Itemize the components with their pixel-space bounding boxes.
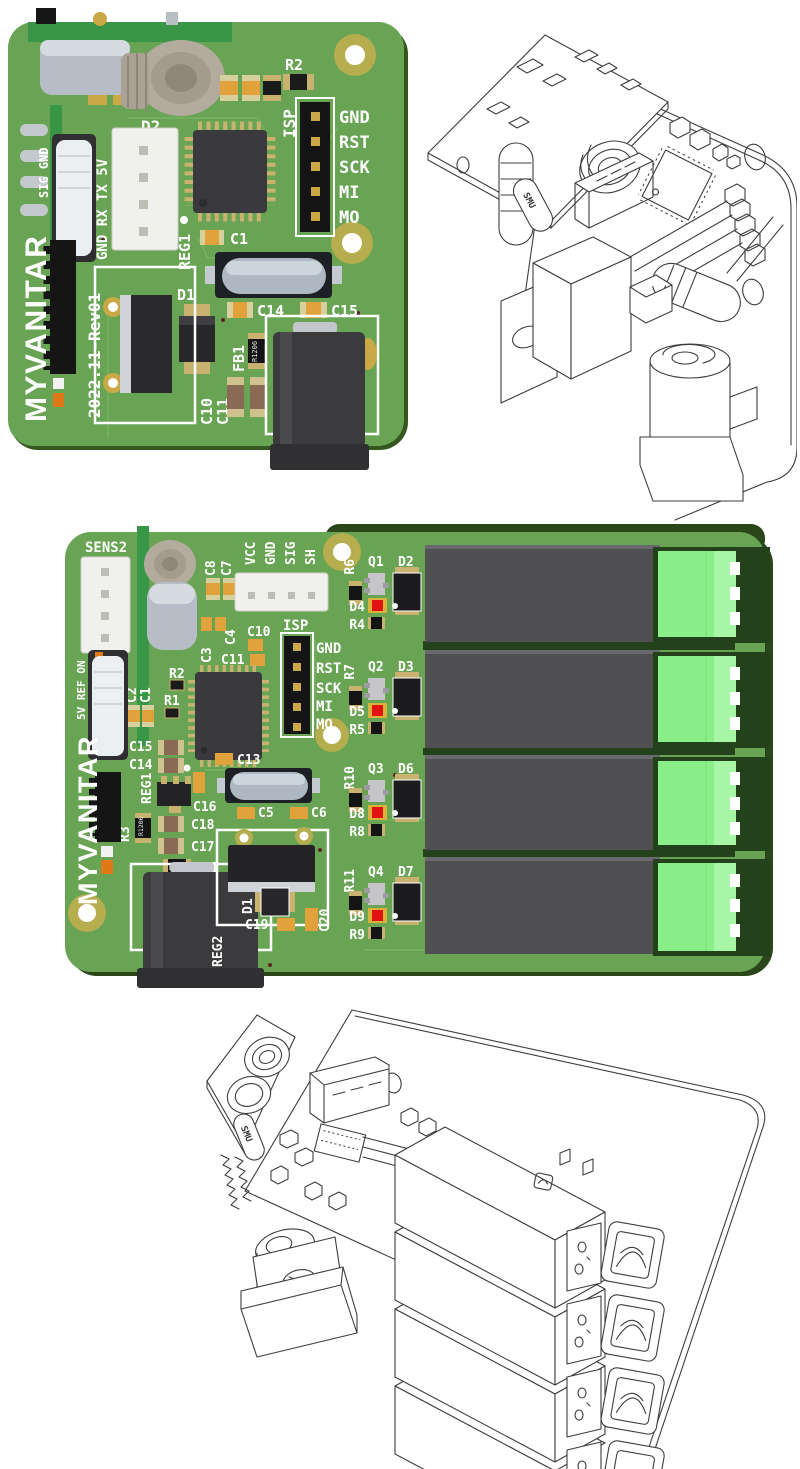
- ref-label: C7: [220, 560, 235, 576]
- resistor-label: R6: [343, 559, 358, 575]
- ref-label: C15: [331, 302, 358, 320]
- crystal: [217, 768, 320, 803]
- ref-label: FB1: [230, 345, 248, 372]
- ref-label: C10: [247, 625, 271, 640]
- resistor-label: R8: [349, 825, 365, 840]
- ref-label: C8: [204, 560, 219, 576]
- isp-pin-label: MI: [316, 699, 333, 715]
- ref-label: R2: [285, 56, 303, 74]
- isp-pin-label: GND: [339, 108, 370, 128]
- transistor-label: Q1: [368, 555, 384, 570]
- wf2-terminals: [567, 1221, 665, 1469]
- isp-pin-label: MO: [316, 717, 333, 733]
- led-label: D9: [349, 910, 365, 925]
- led-resistor: [368, 617, 385, 629]
- edge-pin-labels: 5V REF ON: [75, 660, 88, 720]
- ref-label: C15: [129, 740, 152, 755]
- board2-wireframe: SMU: [205, 985, 795, 1469]
- led-resistor: [368, 927, 385, 939]
- transistor-label: Q4: [368, 865, 384, 880]
- crystal: [205, 252, 342, 298]
- gas-sensor-can: [147, 582, 197, 650]
- resistor-label: R7: [343, 664, 358, 680]
- resistor-label: R5: [349, 723, 365, 738]
- ref-label: REG1: [140, 773, 155, 804]
- ref-label: C13: [237, 753, 260, 768]
- ref-label: C16: [193, 800, 217, 815]
- ref-label: REG1: [176, 234, 194, 270]
- isp-pin-label: SCK: [339, 158, 370, 178]
- led-resistor: [368, 722, 385, 734]
- ref-label: REG2: [211, 936, 226, 967]
- antenna-coil: [144, 540, 196, 588]
- footprint-text: R1206: [137, 816, 145, 836]
- output-pin-label: GND: [264, 541, 279, 565]
- isp-pin-label: SCK: [316, 681, 342, 697]
- resistor-label: R9: [349, 928, 365, 943]
- revision-text: 2022.11-Rev01: [85, 293, 104, 418]
- serial-pin-labels: GND RX TX 5V: [95, 158, 111, 260]
- dc-barrel-jack: [266, 316, 378, 470]
- ref-label: C14: [257, 302, 284, 320]
- ref-label: C6: [311, 806, 327, 821]
- board2-render: 2022.12-Rev02 SENS2 C8 C7 VCC GND SIG SH…: [65, 520, 775, 990]
- screw-pad: [93, 12, 107, 26]
- isp-pin-label: GND: [316, 641, 341, 657]
- ref-label: D1: [177, 286, 195, 304]
- ref-label: C5: [258, 806, 274, 821]
- ref-label: C4: [224, 629, 239, 645]
- ref-label: C20: [318, 908, 333, 932]
- brand-text: MYVANITAR: [20, 235, 53, 422]
- pcb-render-sheet: C2 C3 R1 R2 ISP GND RST SCK MI MO D2 GND…: [0, 0, 800, 1469]
- isp-pin-label: MI: [339, 183, 359, 203]
- diode-d1: [255, 888, 295, 916]
- board1-render: C2 C3 R1 R2 ISP GND RST SCK MI MO D2 GND…: [8, 8, 412, 470]
- isp-pin-label: RST: [316, 661, 341, 677]
- output-pin-label: SH: [304, 549, 319, 565]
- ref-label: C1: [230, 230, 248, 248]
- footprint-text: R1206: [251, 341, 259, 362]
- isp-pin-label: RST: [339, 133, 370, 153]
- edge-pin-labels: SIG GND: [37, 147, 51, 198]
- led-label: D8: [349, 807, 365, 822]
- r3-chip: R1206: [135, 813, 151, 843]
- ref-label: C1: [139, 687, 154, 703]
- transistor-label: Q2: [368, 660, 384, 675]
- isp-label: ISP: [283, 618, 308, 634]
- output-pin-label: VCC: [244, 542, 259, 565]
- led-label: D4: [349, 600, 365, 615]
- ref-label: C3: [200, 647, 215, 663]
- mounting-hole: [331, 222, 373, 264]
- sens2-connector: [81, 557, 130, 653]
- ref-label: C18: [191, 818, 215, 833]
- status-led: [368, 908, 387, 923]
- led-resistor: [368, 824, 385, 836]
- board1-wireframe: SMU: [425, 5, 797, 545]
- resistor-label: R10: [343, 766, 358, 790]
- mcu-chip: [180, 126, 271, 224]
- tactile-button: [36, 8, 56, 24]
- mounting-hole: [334, 34, 376, 76]
- rf-daughterboard: [28, 8, 232, 42]
- ref-label: R1: [164, 694, 180, 709]
- isp-pin-label: MO: [339, 208, 359, 228]
- status-led: [368, 703, 387, 718]
- resistor-label: R4: [349, 618, 365, 633]
- transistor-label: Q3: [368, 762, 384, 777]
- status-led: [368, 805, 387, 820]
- output-pin-label: SIG: [284, 541, 299, 565]
- ferrite-bead: R1206: [248, 333, 267, 369]
- brand-text: MYVANITAR: [73, 735, 103, 905]
- ref-label: C14: [129, 758, 153, 773]
- ref-label: C17: [191, 840, 214, 855]
- sensor-conn-label: SENS2: [85, 540, 127, 556]
- resistor-label: R11: [343, 869, 358, 893]
- ref-label: D1: [241, 898, 256, 914]
- ref-label: C19: [245, 918, 268, 933]
- status-led: [368, 598, 387, 613]
- led-label: D5: [349, 705, 365, 720]
